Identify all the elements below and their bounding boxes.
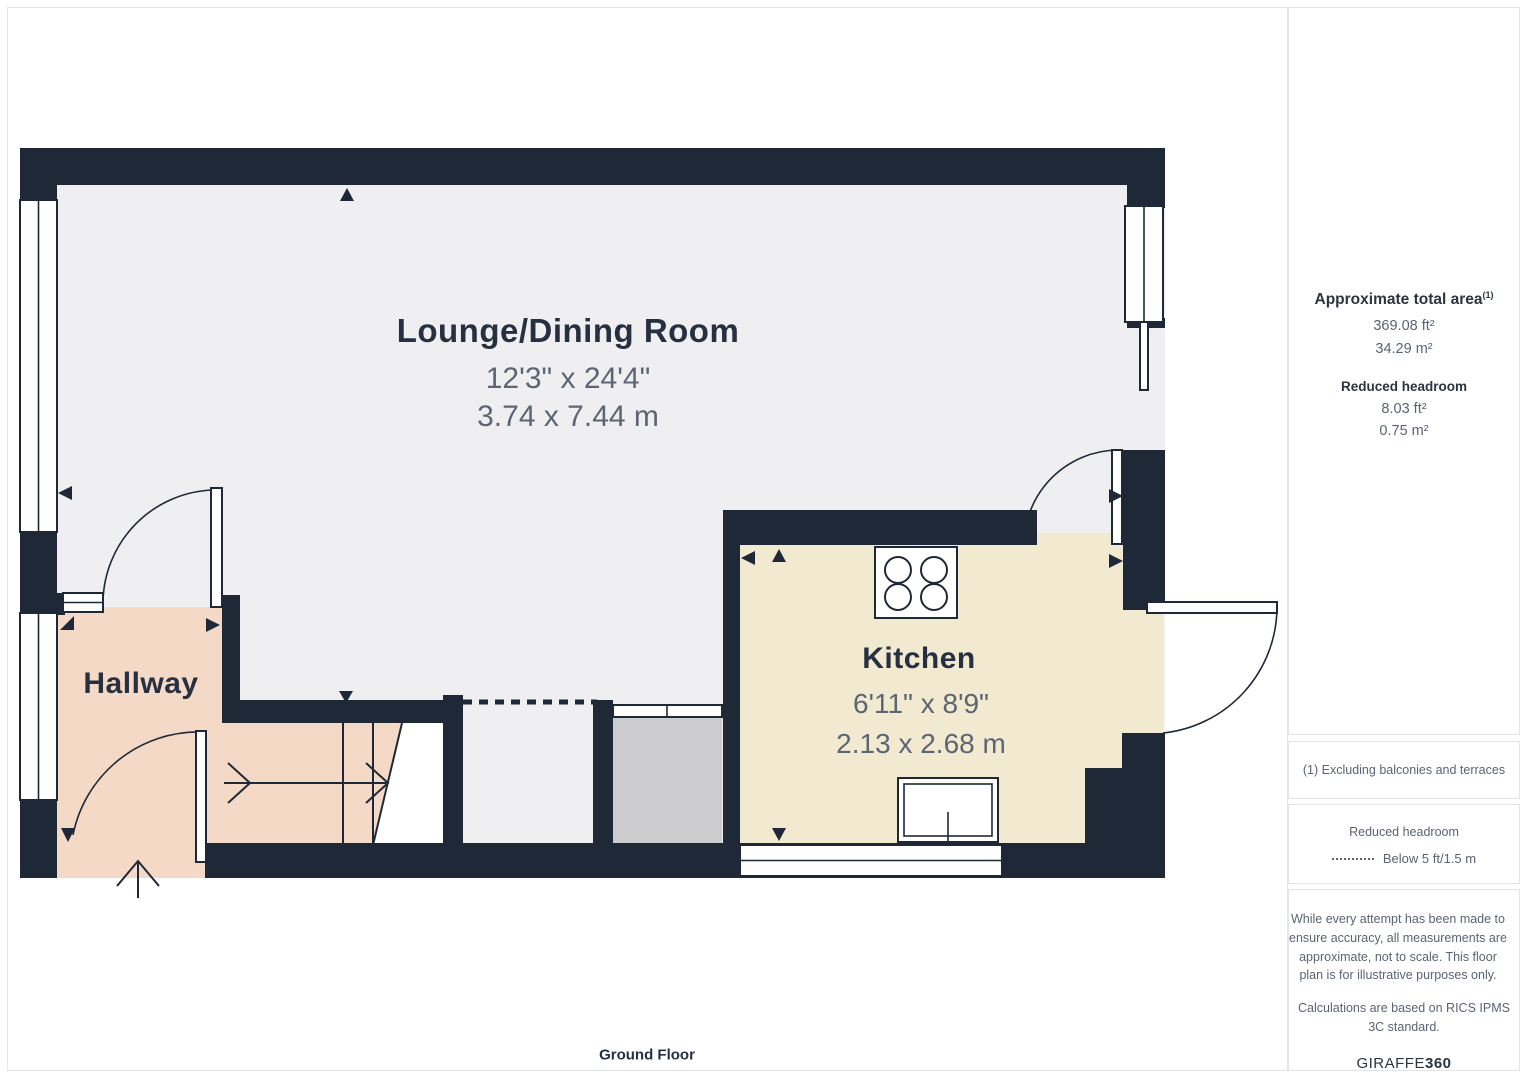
ground-floor-plan: Lounge/Dining Room 12'3" x 24'4" 3.74 x … (0, 0, 1287, 1080)
window-kitchen-bottom (740, 845, 1002, 876)
legend-panel: Reduced headroom Below 5 ft/1.5 m (1288, 804, 1520, 884)
room-dims-kitchen-metric: 2.13 x 2.68 m (836, 728, 1006, 760)
area-summary-panel: Approximate total area(1) 369.08 ft² 34.… (1288, 7, 1520, 735)
legend-label: Below 5 ft/1.5 m (1383, 851, 1476, 866)
floor-name-label: Ground Floor (599, 1047, 695, 1064)
wall-spur (1140, 322, 1148, 390)
closet-door-top (613, 705, 722, 717)
window-top-right (1125, 206, 1163, 322)
room-label-lounge: Lounge/Dining Room (397, 312, 740, 350)
room-label-hallway: Hallway (83, 667, 198, 701)
stove-icon (875, 547, 957, 618)
reduced-headroom-ft: 8.03 ft² (1289, 401, 1519, 417)
sink-icon (898, 778, 998, 842)
total-area-footnote-marker: (1) (1482, 290, 1493, 300)
room-dims-lounge-metric: 3.74 x 7.44 m (477, 400, 659, 434)
disclaimer-2: Calculations are based on RICS IPMS 3C s… (1291, 999, 1517, 1037)
total-area-title: Approximate total area(1) (1289, 290, 1519, 309)
disclaimer-panel: While every attempt has been made to ens… (1288, 889, 1520, 1071)
legend-title: Reduced headroom (1289, 825, 1519, 839)
total-area-m: 34.29 m² (1289, 341, 1519, 357)
window-hallway-top (63, 593, 103, 612)
window-left-upper (20, 200, 57, 532)
reduced-headroom-m: 0.75 m² (1289, 423, 1519, 439)
brand-logo: GIRAFFE360 (1289, 1055, 1519, 1072)
dotted-line-swatch (1332, 858, 1374, 860)
legend-row: Below 5 ft/1.5 m (1289, 851, 1519, 866)
footnote-text: (1) Excluding balconies and terraces (1303, 763, 1505, 777)
disclaimer-1: While every attempt has been made to ens… (1289, 910, 1507, 985)
brand-suffix: 360 (1425, 1055, 1452, 1072)
room-dims-kitchen-imperial: 6'11" x 8'9" (853, 688, 989, 720)
brand-name: GIRAFFE (1356, 1055, 1425, 1072)
footnote-panel: (1) Excluding balconies and terraces (1288, 741, 1520, 799)
floorplan-page: Lounge/Dining Room 12'3" x 24'4" 3.74 x … (0, 0, 1527, 1080)
floor-plan-drawing (0, 0, 1287, 1080)
door-kitchen-exterior (1147, 602, 1277, 733)
room-dims-lounge-imperial: 12'3" x 24'4" (486, 362, 651, 396)
window-left-lower (20, 613, 57, 800)
total-area-ft: 369.08 ft² (1289, 318, 1519, 334)
reduced-headroom-title: Reduced headroom (1289, 379, 1519, 394)
room-label-kitchen: Kitchen (862, 642, 976, 676)
